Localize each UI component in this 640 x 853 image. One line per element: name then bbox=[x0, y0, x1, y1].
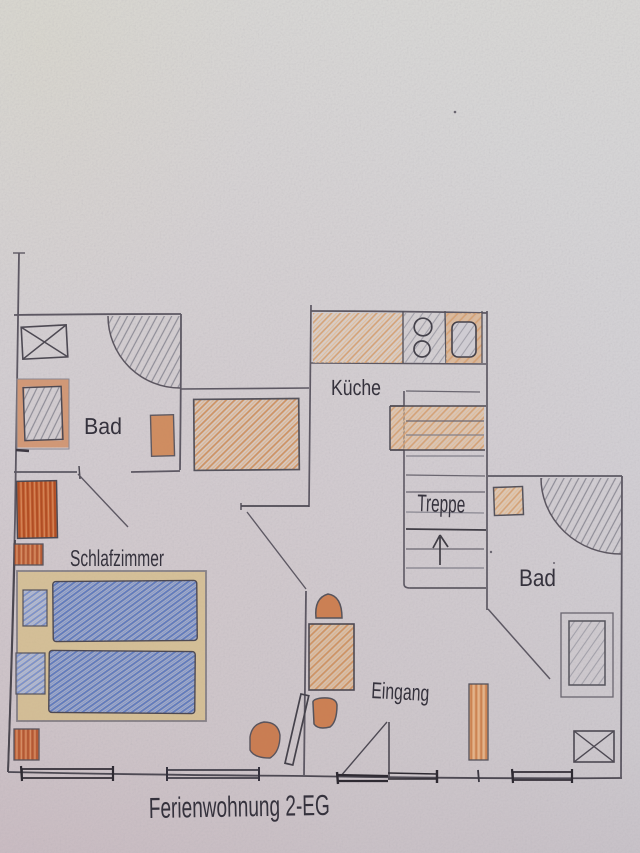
svg-text:Bad: Bad bbox=[519, 565, 556, 592]
svg-text:Bad: Bad bbox=[84, 413, 122, 439]
svg-text:Ferienwohnung 2-EG: Ferienwohnung 2-EG bbox=[149, 790, 331, 825]
svg-text:Treppe: Treppe bbox=[417, 490, 466, 519]
svg-text:Eingang: Eingang bbox=[371, 677, 430, 706]
svg-text:Schlafzimmer: Schlafzimmer bbox=[70, 545, 164, 571]
svg-text:Küche: Küche bbox=[331, 375, 381, 400]
